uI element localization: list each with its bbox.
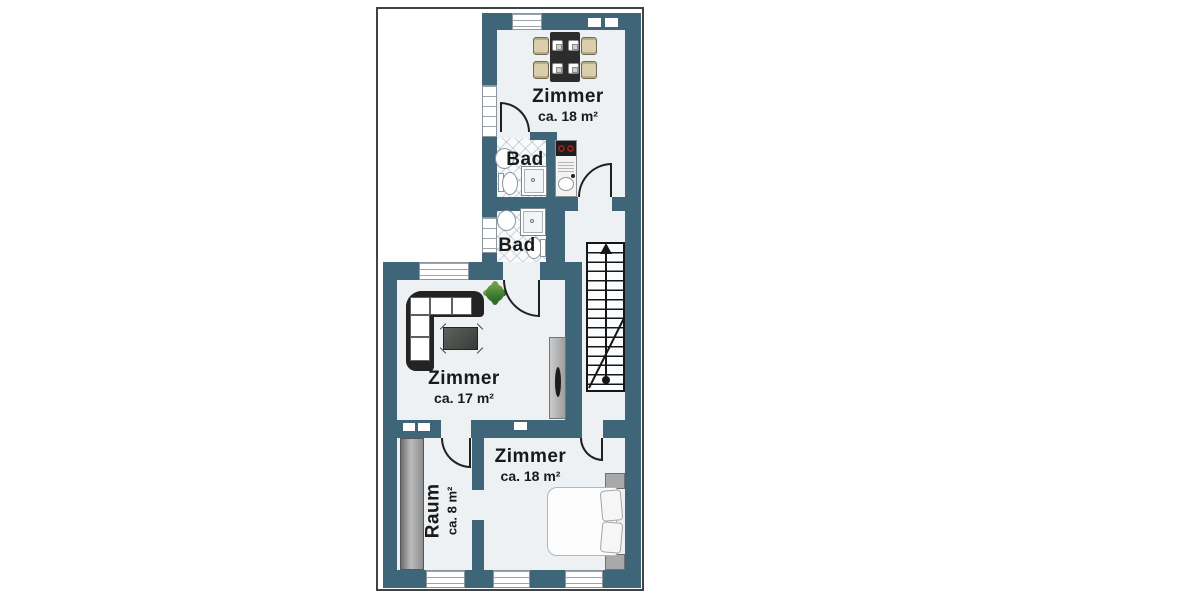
window-living-top <box>419 262 469 280</box>
faucet-icon <box>571 174 575 178</box>
room-area: ca. 18 m² <box>508 108 628 125</box>
shower-drain-icon <box>530 219 534 223</box>
coffee-table <box>443 327 478 350</box>
room-name: Zimmer <box>414 368 514 390</box>
chair <box>581 37 597 55</box>
chair <box>581 61 597 79</box>
room-label-zimmer-middle: Zimmer ca. 17 m² <box>414 368 514 407</box>
window-bottom-1 <box>426 570 465 588</box>
wall-marker <box>514 422 527 430</box>
sofa-cushion <box>410 297 430 315</box>
wall-stairwell-left <box>565 262 582 438</box>
shower-drain-icon <box>531 178 535 182</box>
stair-start-dot <box>602 376 610 384</box>
living-cabinet <box>549 337 566 419</box>
floorplan-frame: Zimmer ca. 18 m² Bad Bad Zimmer ca. 17 m… <box>376 7 644 591</box>
window-left-upper <box>482 85 497 137</box>
place-setting <box>552 40 563 51</box>
bed-pillow <box>600 489 624 522</box>
wall-marker <box>418 423 430 431</box>
wall-living-top-b <box>469 262 503 280</box>
sofa-cushion <box>410 315 430 337</box>
bed-pillow <box>600 521 624 554</box>
wall-marker <box>403 423 415 431</box>
room-label-zimmer-bottom: Zimmer ca. 18 m² <box>473 446 588 485</box>
sofa-cushion <box>452 297 472 315</box>
wall-marker <box>605 18 618 27</box>
room-label-bad-lower: Bad <box>491 235 543 257</box>
room-area: ca. 17 m² <box>414 390 514 407</box>
window-top <box>512 13 542 30</box>
place-setting <box>568 63 579 74</box>
toilet-bowl <box>502 172 518 195</box>
shower <box>520 208 546 236</box>
cabinet-handle-icon <box>555 367 561 397</box>
wall-middle-band-c <box>603 420 641 438</box>
sofa-cushion <box>430 297 452 315</box>
wall-band-upper-right <box>612 197 625 211</box>
kitchenette <box>555 140 577 197</box>
room-name: Zimmer <box>508 86 628 108</box>
room-label-zimmer-top: Zimmer ca. 18 m² <box>508 86 628 125</box>
stair-direction-line <box>605 252 607 380</box>
drainer <box>558 162 574 174</box>
room-label-raum: Raum ca. 8 m² <box>406 466 476 556</box>
chair <box>533 37 549 55</box>
window-bottom-2 <box>493 570 530 588</box>
window-bottom-3 <box>565 570 603 588</box>
room-area: ca. 8 m² <box>445 484 460 539</box>
place-setting <box>552 63 563 74</box>
wall-bath-lower-right <box>546 197 565 262</box>
sofa-cushion <box>410 337 430 361</box>
bed-headboard-block <box>605 554 625 570</box>
room-area: ca. 18 m² <box>473 468 588 485</box>
wall-marker <box>588 18 601 27</box>
bath-sink <box>497 210 516 231</box>
chair <box>533 61 549 79</box>
room-name: Zimmer <box>473 446 588 468</box>
stair-up-arrow-icon <box>600 243 612 254</box>
room-label-bad-upper: Bad <box>499 149 551 171</box>
room-name: Raum <box>422 484 444 539</box>
rotated-label: Raum ca. 8 m² <box>422 484 460 539</box>
burner-icon <box>567 145 574 152</box>
burner-icon <box>558 145 565 152</box>
place-setting <box>568 40 579 51</box>
kitchen-sink <box>558 177 574 191</box>
